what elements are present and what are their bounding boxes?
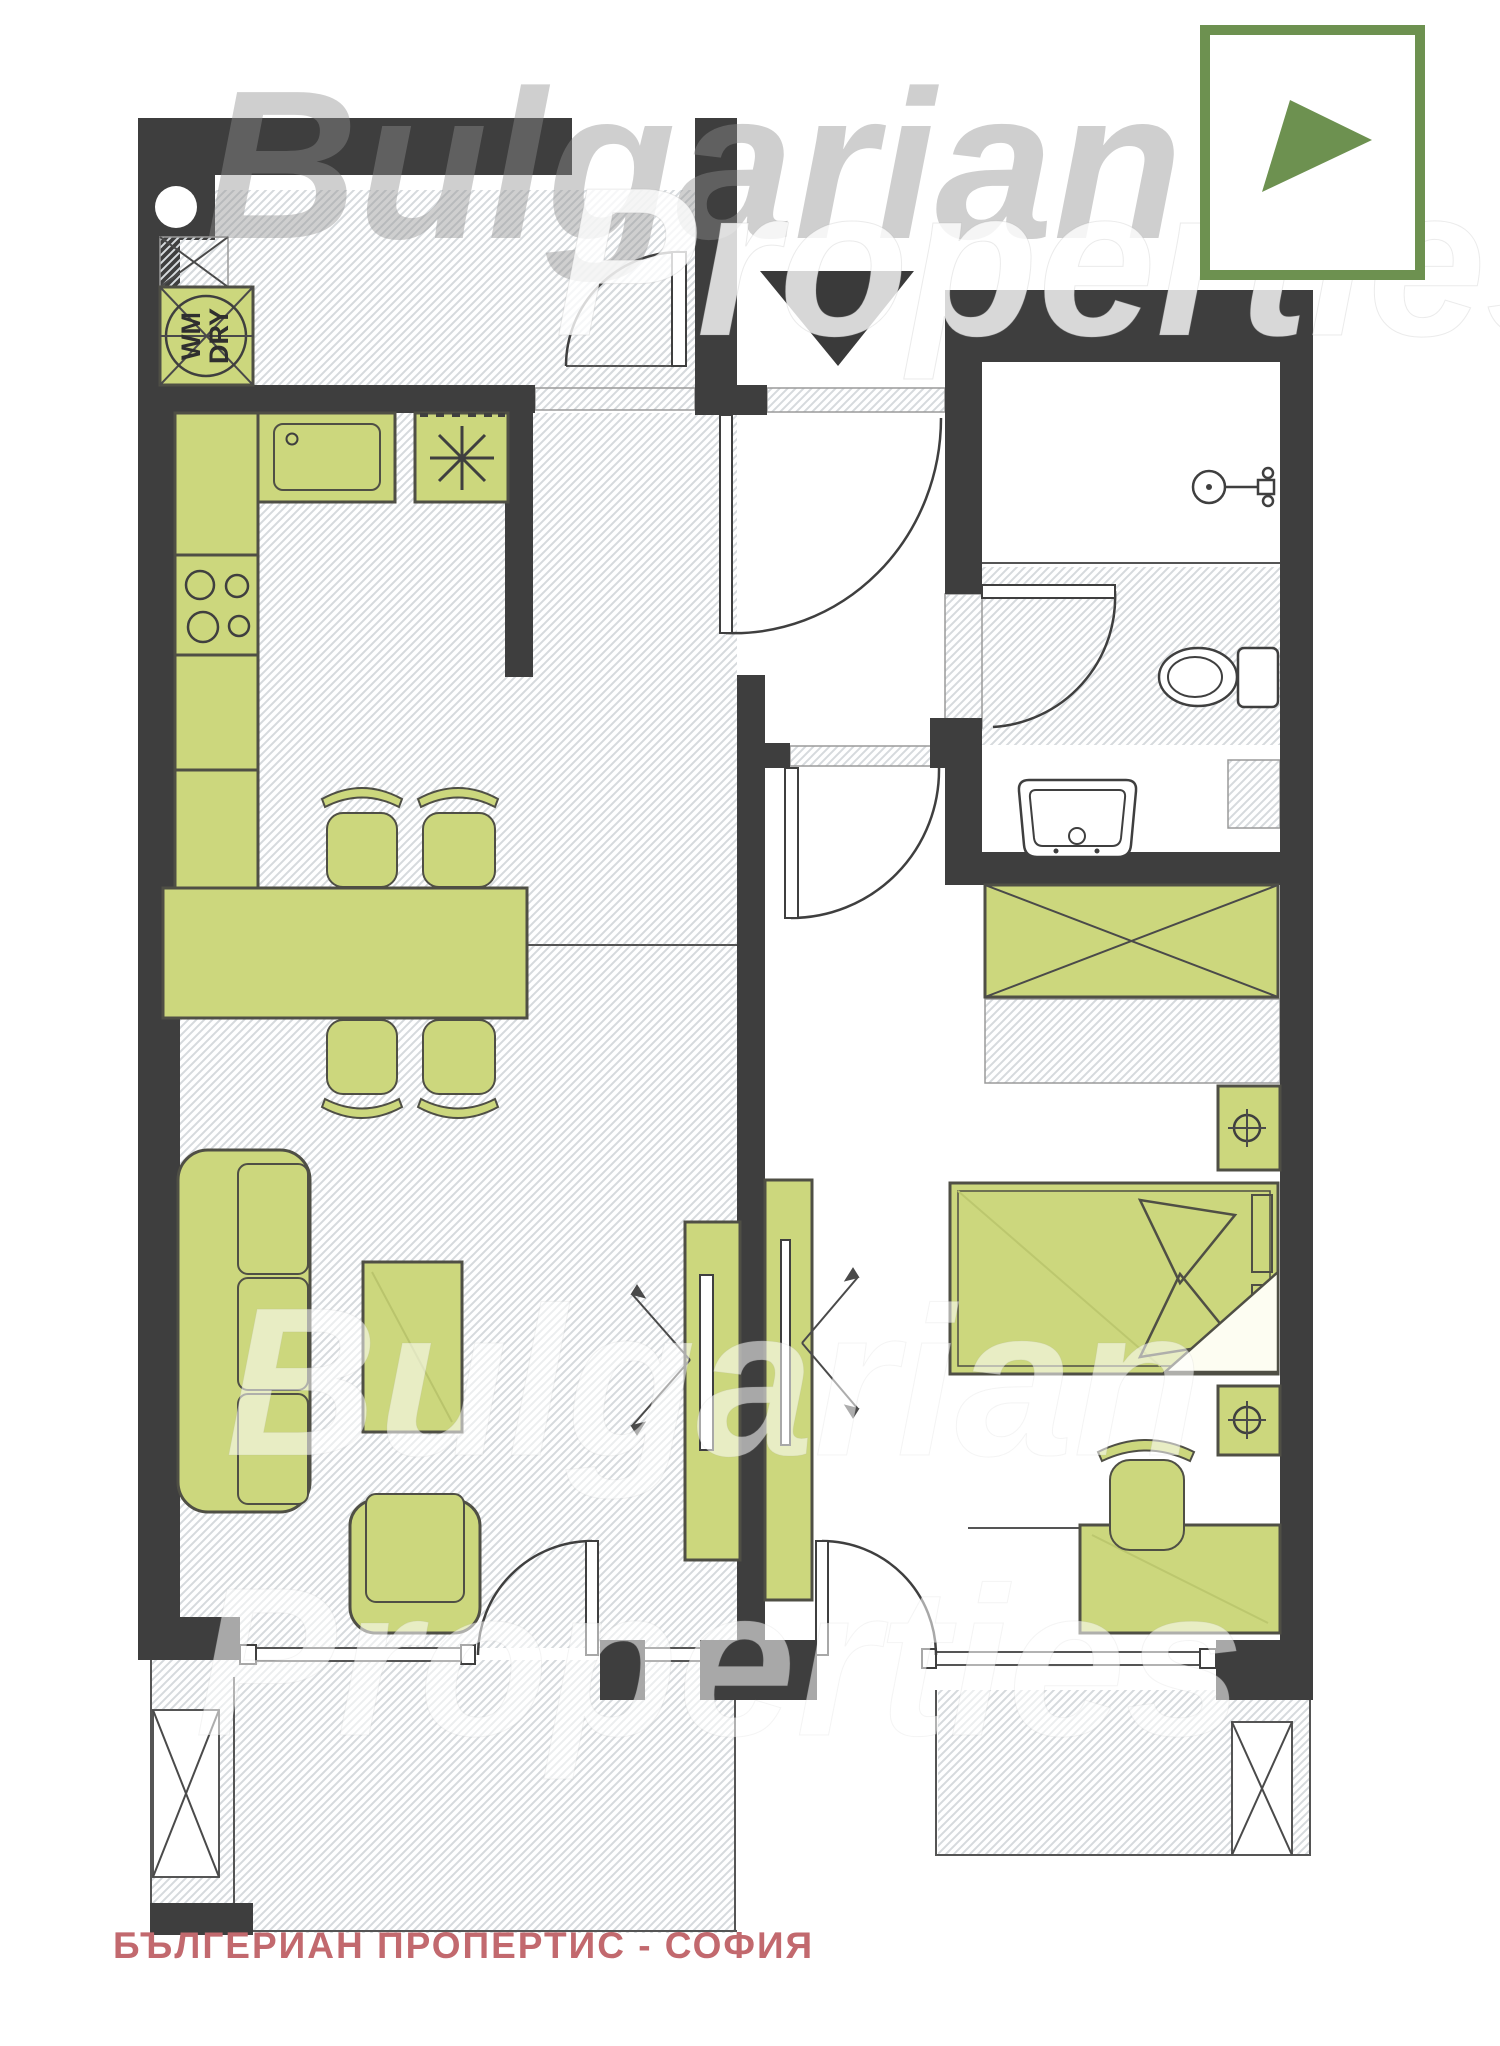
watermark-text: Properties (195, 1543, 1244, 1780)
shower-head-icon (1193, 468, 1274, 506)
bed-head-shelf (985, 999, 1280, 1083)
bathroom-sink (1019, 780, 1136, 857)
shaft-circle (155, 186, 197, 228)
washer-label-dry: DRY (204, 308, 234, 364)
dining-table (163, 888, 527, 1018)
washer-label-wm: WM (176, 312, 206, 360)
washing-machine: WM DRY (160, 287, 253, 385)
kitchen-cabinet (175, 770, 258, 888)
floor-plan-page: WM DRY (0, 0, 1500, 2046)
floor-plan-image: WM DRY (0, 0, 1500, 2046)
duct-shaft (1228, 760, 1280, 828)
hallway-threshold (767, 388, 945, 412)
stove (415, 413, 508, 502)
toilet (1159, 648, 1278, 707)
bedroom (765, 885, 1280, 1633)
bedroom-threshold (790, 746, 932, 766)
watermark-text: Bulgarian (225, 1263, 1203, 1500)
logo (1205, 30, 1420, 275)
hob (175, 555, 258, 655)
wardrobe-x (985, 885, 1278, 997)
agency-caption: БЪЛГЕРИАН ПРОПЕРТИС - СОФИЯ (113, 1925, 814, 1966)
hallway-door (720, 415, 941, 633)
kitchen-cabinet (175, 655, 258, 770)
bathroom-threshold (945, 594, 982, 728)
kitchen-cabinet (175, 413, 258, 555)
kitchen-sink-counter (258, 413, 395, 502)
entry-corridor-threshold (535, 388, 695, 410)
bedroom-door (785, 768, 939, 918)
nightstand (1218, 1086, 1280, 1170)
nightstand (1218, 1386, 1280, 1455)
